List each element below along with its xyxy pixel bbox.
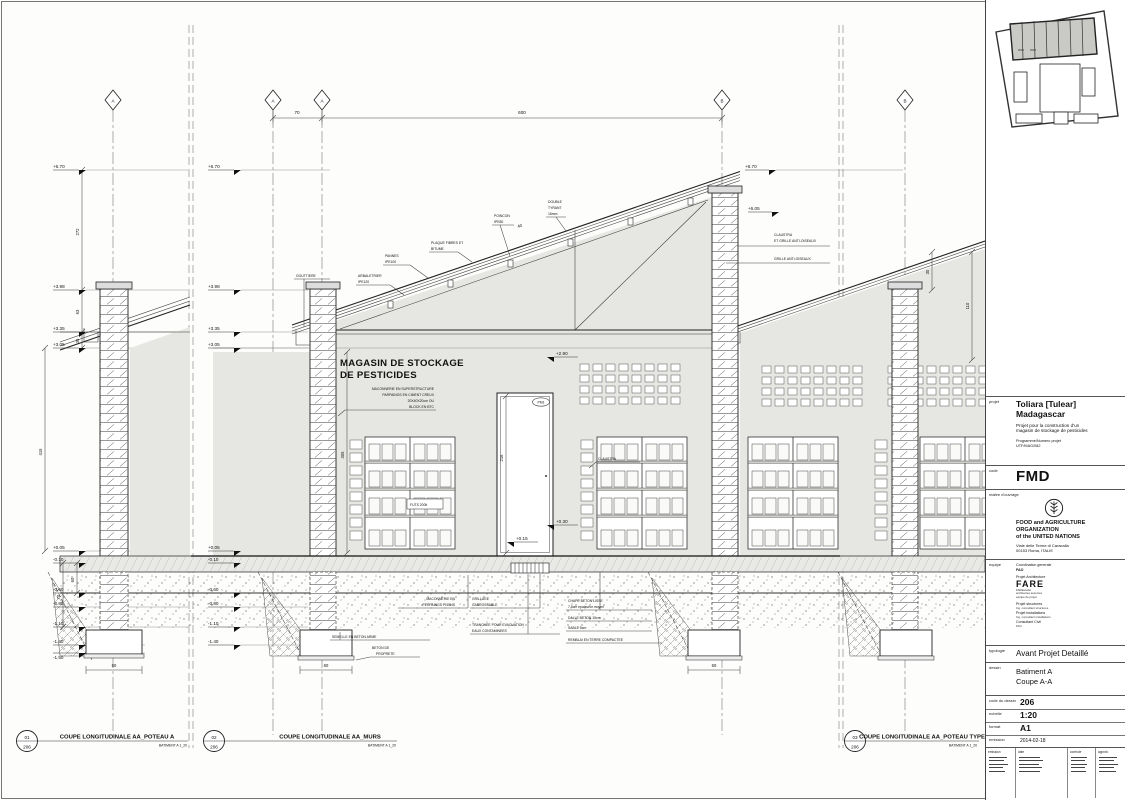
elev-label: +3.98 [208, 284, 220, 289]
dim-60: 60 [70, 577, 75, 582]
elev-label: +3.05 [53, 342, 65, 347]
elev-label: +6.70 [745, 164, 757, 169]
titleblock-code-section: code FMD [986, 466, 1125, 490]
elev-label: -0.10 [208, 557, 219, 562]
door-tag: PM1 [538, 401, 545, 405]
project-desc-line2: magasin de stockage de pesticides [1016, 428, 1122, 434]
elev-label: +0.05 [53, 545, 65, 550]
top-dimension-chain: 70 600 [270, 110, 725, 125]
titleblock-client-section: maitre d'ouvrage FOOD and AGRICULTURE OR… [986, 490, 1125, 560]
format-value: A1 [1020, 723, 1031, 733]
callout-03: 03 206 COUPE LONGITUDINALE AA_POTEAU TYP… [845, 731, 985, 752]
note-line: MACONNERIE EN [426, 597, 455, 601]
room-title-line2: DE PESTICIDES [340, 370, 417, 381]
elev-label: +3.05 [208, 342, 220, 347]
note-line: DALLE BETON 15cm [568, 616, 601, 620]
issue-date-value: 2014-02-18 [1020, 738, 1046, 744]
dim-110: 110 [965, 302, 970, 309]
drawing-subtitle: BATIMENT A 1_20 [159, 744, 187, 748]
drums-label: FUTS 200lt [410, 503, 427, 507]
drawing-name-line2: Coupe A-A [1016, 677, 1052, 687]
tie-rod-label: 16mm [548, 212, 558, 216]
team-label: equipe [989, 562, 1001, 567]
purlin-label: PANNES [385, 254, 399, 258]
note-line: 7.5cm epaisseur moyen [568, 605, 604, 609]
drawing-title: COUPE LONGITUDINALE AA_MURS [279, 735, 381, 741]
code-value: FMD [1016, 468, 1050, 485]
dim-600: 600 [518, 110, 526, 115]
titleblock-drawing-section: dessin Batiment A Coupe A-A [986, 663, 1125, 696]
dim-footing: 60 [112, 663, 117, 668]
elev-label: -1.40 [53, 639, 64, 644]
drawing-sheet: A A A B B 70 600 [0, 0, 1125, 800]
elev-label: -0.80 [53, 601, 64, 606]
grid-bubble-label: B [903, 98, 906, 103]
titleblock-meta-section: code du dessin 206 echelle 1:20 format A… [986, 696, 1125, 748]
note-line: SABLE 5cm [568, 626, 586, 630]
fao-logo [1044, 498, 1064, 518]
drawing-title: COUPE LONGITUDINALE AA_POTEAU TYPE [859, 735, 985, 741]
revision-header: controle [1070, 750, 1093, 754]
note-line: PROPRETE [376, 652, 395, 656]
note-line: EAUX CONTAMINEES [472, 629, 508, 633]
titleblock-typology-section: typologie Avant Projet Detaillé [986, 646, 1125, 663]
team-line: FAO [1016, 625, 1122, 629]
elev-label: +6.70 [53, 164, 65, 169]
elev-label: -0.10 [53, 557, 64, 562]
scale-value: 1:20 [1020, 710, 1037, 720]
claustra-label: CLAUSTRA [598, 457, 617, 461]
elev-label: -1.10 [53, 621, 64, 626]
revision-column: controle [1068, 748, 1096, 798]
sheet-number-value: 206 [1020, 697, 1034, 707]
note-line: SEMELLE EN BETON ARME [332, 635, 377, 639]
note-line: CHAPE BETON LISSE [568, 599, 604, 603]
title-block: projet Toliara [Tulear] Madagascar Proje… [985, 0, 1125, 800]
drawing-label: dessin [989, 665, 1001, 670]
drawing-subtitle: BATIMENT A 1_20 [949, 744, 977, 748]
tie-rod-label: TYRANT [548, 206, 562, 210]
typology-value: Avant Projet Detaillé [1016, 649, 1088, 658]
client-address-line2: 00153 Roma, ITALIE [1016, 548, 1085, 553]
note-line: TRANCHEE POUR EVACUATION [472, 623, 524, 627]
callout-number: 02 [211, 735, 217, 740]
titleblock-revision-table: emission date controle approb. [986, 748, 1125, 798]
revision-column: approb. [1096, 748, 1125, 798]
callout-number: 01 [24, 735, 30, 740]
elev-label: -0.60 [208, 587, 219, 592]
dim-216: 216 [499, 454, 504, 462]
dim-415: 415 [38, 448, 43, 456]
callout-01: 01 206 COUPE LONGITUDINALE AA_POTEAU A B… [17, 731, 189, 752]
grid-bubbles: A A A B B [105, 90, 913, 110]
revision-header: date [1018, 750, 1065, 754]
callout-02: 02 206 COUPE LONGITUDINALE AA_MURS BATIM… [204, 731, 398, 752]
drawing-subtitle: BATIMENT A 1_20 [368, 744, 396, 748]
door: PM1 [497, 393, 553, 556]
note-line: BLOCK EN BTC [409, 405, 434, 409]
elev-label: -0.60 [53, 587, 64, 592]
note-line: 20X40X20cm OU [408, 399, 435, 403]
roof-sheet-label: BITUME [431, 247, 445, 251]
elev-label: -0.80 [208, 601, 219, 606]
elev-label: +0.30 [556, 519, 568, 524]
drawing-title: COUPE LONGITUDINALE AA_POTEAU A [60, 735, 175, 741]
sheet-number-label: code du dessin [989, 698, 1016, 703]
team-fare: FARE [1016, 580, 1122, 589]
client-org-line3: of the UNITED NATIONS [1016, 534, 1085, 541]
note-line: MACONNERIE EN SUPERSTRUCTURE [372, 387, 435, 391]
revision-column: date [1016, 748, 1068, 798]
callout-number: 03 [852, 735, 858, 740]
dim-30: 30 [75, 338, 80, 343]
note-line: BETON DE [372, 646, 390, 650]
dim-63: 63 [75, 309, 80, 314]
programme-value: UTF/MAG/082 [1016, 444, 1122, 449]
bird-grille-label: GRILLE ANTI-OISEAUX [774, 257, 811, 261]
client-label: maitre d'ouvrage [989, 492, 1019, 497]
dim-70b: 70 [56, 594, 61, 599]
project-title-line2: Madagascar [1016, 410, 1122, 420]
drawing-name-line1: Batiment A [1016, 667, 1052, 677]
revision-column: emission [986, 748, 1016, 798]
key-plan-other-buildings [1014, 64, 1098, 124]
elev-label: +0.15 [516, 536, 528, 541]
claustra-grille-label: CLAUSTRA [774, 233, 793, 237]
rafter-label: IPE120 [358, 280, 369, 284]
client-org-line2: ORGANIZATION [1016, 527, 1085, 534]
kingpost-label: IPE80 [494, 220, 503, 224]
project-label: projet [989, 399, 999, 404]
gutter-label: GOUTTIERE [296, 274, 317, 278]
elev-label: +2.90 [556, 351, 568, 356]
typology-label: typologie [989, 648, 1005, 653]
issue-date-label: emission [989, 737, 1005, 742]
elev-label: -1.40 [208, 639, 219, 644]
grid-bubble-label: B [720, 98, 723, 103]
scale-label: echelle [989, 711, 1002, 716]
callout-sheet: 206 [210, 745, 218, 750]
roof-sheet-label: PLAQUE FIBRES ET [431, 241, 463, 245]
note-line: PARPAINGS EN CIMENT CREUX [382, 393, 434, 397]
elev-label: -1.10 [208, 621, 219, 626]
code-label: code [989, 468, 998, 473]
kingpost-label: POINCON [494, 214, 510, 218]
note-line: REMBLAI EN TERRE COMPACTEE [568, 638, 624, 642]
elev-label: +6.70 [208, 164, 220, 169]
section-drawing: A A A B B 70 600 [0, 0, 985, 800]
callout-sheet: 206 [851, 745, 859, 750]
dim-40: 40 [517, 222, 524, 228]
elev-label: +0.05 [208, 545, 220, 550]
elev-label: -1.50 [53, 655, 64, 660]
claustra-grille-label: ET GRILLE ANTI-OISEAUX [774, 239, 817, 243]
dim-footing: 60 [712, 663, 717, 668]
wall-fills [130, 197, 985, 556]
dim-30b: 30 [925, 269, 930, 274]
dim-272: 272 [75, 228, 80, 236]
purlin-label: IPE100 [385, 260, 396, 264]
note-line: GRILLAGE [472, 597, 490, 601]
elev-label: +6.05 [748, 206, 760, 211]
rafter-label: ARBALETRIER [358, 274, 382, 278]
dim-footing: 60 [324, 663, 329, 668]
note-line: CARROSSABLE [472, 603, 498, 607]
elev-label: +3.35 [208, 326, 220, 331]
callout-sheet: 206 [23, 745, 31, 750]
room-title-line1: MAGASIN DE STOCKAGE [340, 358, 464, 369]
titleblock-team-section: equipe Coordination generale FAO Projet … [986, 560, 1125, 646]
revision-header: emission [988, 750, 1013, 754]
elev-label: +3.35 [53, 326, 65, 331]
dim-305: 305 [340, 451, 345, 459]
elev-label: +3.98 [53, 284, 65, 289]
team-names2: equipe de projet [1016, 596, 1122, 600]
tie-rod-label: DOUBLE [548, 200, 563, 204]
format-label: format [989, 724, 1000, 729]
note-line: PERPAINGS PLEINS [422, 603, 455, 607]
drawing-title-callouts: 01 206 COUPE LONGITUDINALE AA_POTEAU A B… [17, 731, 985, 752]
revision-header: approb. [1098, 750, 1124, 754]
key-plan [990, 6, 1122, 134]
dim-70: 70 [294, 110, 300, 115]
footing-dimensions: 60 60 60 [86, 663, 740, 674]
client-org-line1: FOOD and AGRICULTURE [1016, 520, 1085, 527]
titleblock-project-section: projet Toliara [Tulear] Madagascar Proje… [986, 396, 1125, 466]
team-line: FAO [1016, 568, 1122, 573]
